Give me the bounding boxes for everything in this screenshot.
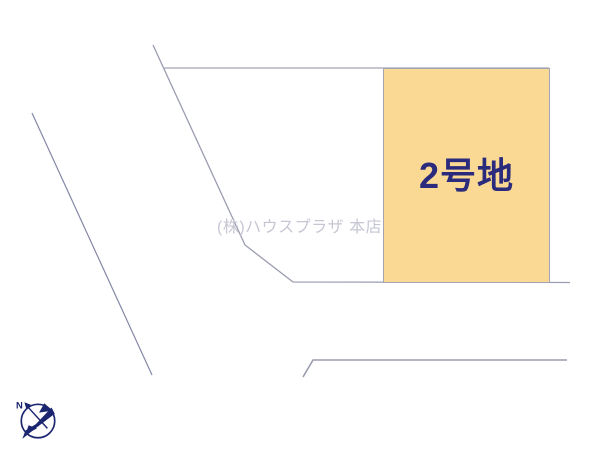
company-watermark: (株)ハウスプラザ 本店 (217, 213, 387, 237)
compass-north-icon: N (15, 397, 61, 443)
lot-2-parcel[interactable]: 2号地 (383, 68, 550, 283)
lot-2-label: 2号地 (419, 158, 514, 194)
compass-north-label: N (16, 400, 23, 411)
lot-layout-diagram: (株)ハウスプラザ 本店 2号地 N (0, 0, 600, 450)
road-edge-left (32, 113, 152, 375)
road-edge-bottom (303, 360, 567, 377)
